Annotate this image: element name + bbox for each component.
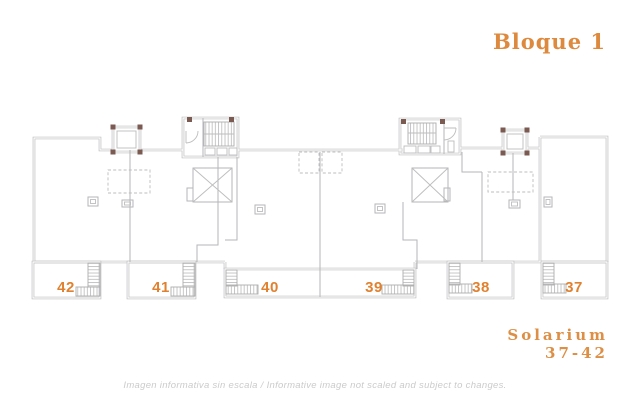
unit-label-38: 38 — [472, 279, 490, 296]
unit-42-stairs — [76, 263, 100, 296]
unit-41-stairs — [171, 263, 195, 296]
unit-label-41: 41 — [152, 279, 170, 296]
stair-core-1 — [186, 117, 237, 155]
unit-label-42: 42 — [57, 279, 75, 296]
door-arc-icon — [186, 131, 198, 143]
stair-core-2 — [401, 119, 456, 153]
unit-37-stairs — [543, 263, 566, 293]
solarium-caption: Solarium 37-42 — [507, 326, 608, 362]
unit-39-stairs — [382, 270, 414, 294]
floor-plan-page: Bloque 1 — [0, 0, 630, 401]
unit-40-stairs — [226, 270, 258, 294]
skylight-2 — [412, 168, 450, 202]
unit-label-37: 37 — [565, 279, 583, 296]
unit-label-40: 40 — [261, 279, 279, 296]
roof-lantern-1 — [111, 125, 143, 155]
unit-38-stairs — [449, 263, 472, 293]
door-arc-icon — [444, 128, 456, 140]
solarium-label: Solarium — [507, 326, 608, 344]
disclaimer-text: Imagen informativa sin escala / Informat… — [0, 380, 630, 391]
skylight-1 — [187, 168, 232, 202]
roof-lantern-2 — [501, 128, 530, 156]
solarium-range: 37-42 — [507, 344, 608, 362]
unit-label-39: 39 — [365, 279, 383, 296]
page-title: Bloque 1 — [493, 29, 606, 54]
